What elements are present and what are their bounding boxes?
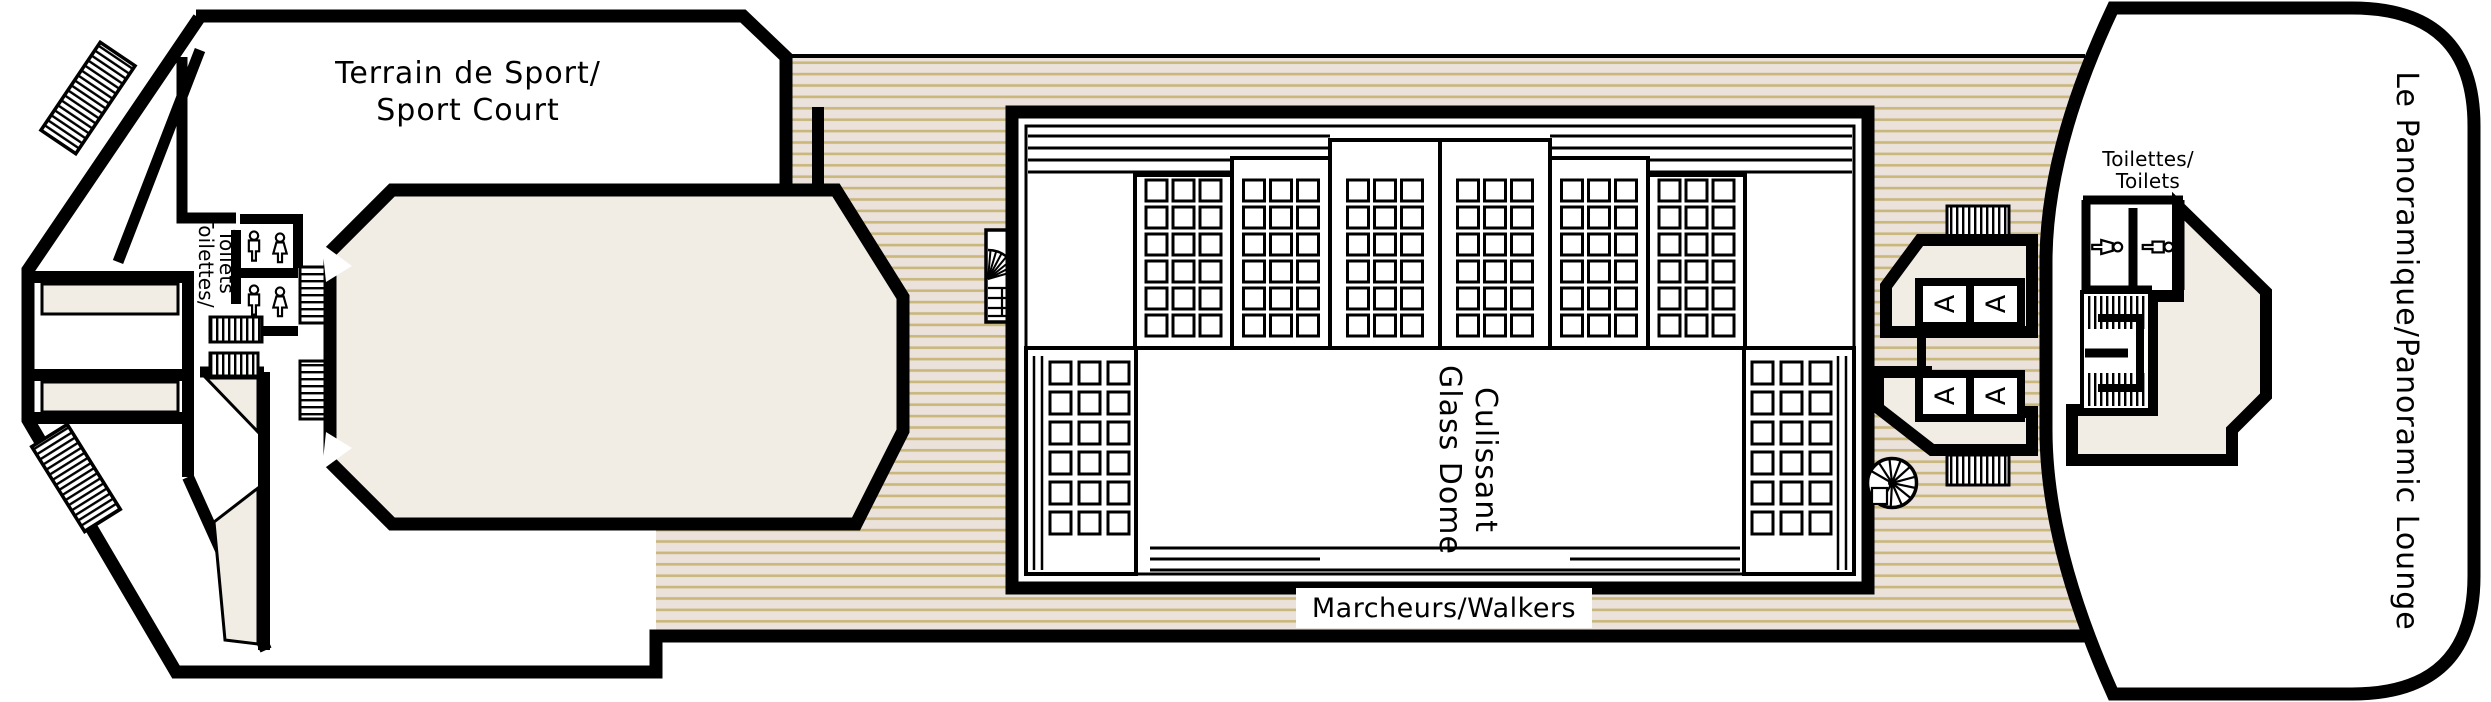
dome-pane-cell bbox=[1146, 207, 1167, 228]
dome-pane-cell bbox=[1079, 362, 1100, 384]
dome-pane-cell bbox=[1616, 315, 1637, 336]
elevator-cab-label: A bbox=[1981, 294, 2012, 313]
tread-stairs-icon bbox=[1947, 206, 2009, 236]
dome-pane-cell bbox=[1200, 207, 1221, 228]
dome-pane-cell bbox=[1200, 261, 1221, 282]
dome-pane-cell bbox=[1781, 392, 1802, 414]
dome-pane-cell bbox=[1686, 180, 1707, 201]
male-figure-icon bbox=[249, 231, 259, 260]
bow-toilets: Toilets Toilettes/ bbox=[194, 214, 298, 331]
dome-pane-cell bbox=[1298, 315, 1319, 336]
dome-pane-cell bbox=[1659, 261, 1680, 282]
dome-pane-cell bbox=[1173, 288, 1194, 309]
tread-stairs-icon bbox=[1947, 455, 2009, 485]
dome-pane-cell bbox=[1512, 234, 1533, 255]
dome-pane-cell bbox=[1108, 512, 1129, 534]
dome-pane-cell bbox=[1686, 234, 1707, 255]
dome-pane-cell bbox=[1402, 288, 1423, 309]
dome-pane-cell bbox=[1173, 180, 1194, 201]
dome-label-line2: Glass Dome bbox=[1432, 365, 1467, 555]
sport-court-label-line1: Terrain de Sport/ bbox=[334, 56, 601, 91]
dome-pane-cell bbox=[1079, 452, 1100, 474]
dome-pane-cell bbox=[1298, 234, 1319, 255]
hatched-stairs-icon bbox=[32, 424, 121, 531]
dome-pane-cell bbox=[1589, 207, 1610, 228]
dome-pane-cell bbox=[1562, 261, 1583, 282]
dome-pane-cell bbox=[1348, 288, 1369, 309]
sport-court-label: Terrain de Sport/ Sport Court bbox=[334, 56, 601, 128]
bow-room-upper bbox=[42, 284, 178, 314]
dome-pane-cell bbox=[1589, 315, 1610, 336]
dome-pane-cell bbox=[1271, 288, 1292, 309]
dome-pane-cell bbox=[1298, 207, 1319, 228]
dome-pane-cell bbox=[1375, 180, 1396, 201]
dome-pane-cell bbox=[1271, 207, 1292, 228]
dome-pane-cell bbox=[1244, 207, 1265, 228]
dome-pane-cell bbox=[1485, 261, 1506, 282]
dome-pane-cell bbox=[1050, 482, 1071, 504]
tread-stairs-icon bbox=[210, 317, 262, 342]
deck-plan-svg: Toilets Toilettes/ Terrain de Sport/ Spo… bbox=[0, 0, 2491, 702]
dome-pane-cell bbox=[1244, 261, 1265, 282]
dome-pane-cell bbox=[1298, 261, 1319, 282]
dome-pane-cell bbox=[1348, 180, 1369, 201]
female-figure-icon bbox=[273, 287, 286, 316]
dome-pane-cell bbox=[1402, 207, 1423, 228]
dome-pane-cell bbox=[1752, 362, 1773, 384]
glass-dome: Culissant Glass Dome bbox=[1012, 112, 1868, 588]
dome-pane-cell bbox=[1485, 288, 1506, 309]
dome-pane-cell bbox=[1200, 288, 1221, 309]
lounge-label: Le Panoramique/Panoramic Lounge bbox=[2389, 71, 2424, 630]
walkers-label: Marcheurs/Walkers bbox=[1296, 588, 1592, 628]
bow-toilets-label-line1: Toilettes/ bbox=[194, 215, 218, 308]
stern-toilets-label-line2: Toilets bbox=[2115, 169, 2180, 193]
dome-pane-cell bbox=[1375, 315, 1396, 336]
bow-wedge-room-2 bbox=[214, 488, 258, 644]
sport-court-roof bbox=[330, 190, 903, 524]
dome-pane-cell bbox=[1616, 207, 1637, 228]
dome-pane-cell bbox=[1271, 261, 1292, 282]
female-figure-icon bbox=[273, 233, 286, 262]
dome-pane-cell bbox=[1108, 392, 1129, 414]
dome-pane-cell bbox=[1562, 288, 1583, 309]
dome-pane-cell bbox=[1146, 288, 1167, 309]
dome-pane-cell bbox=[1348, 234, 1369, 255]
dome-pane-cell bbox=[1458, 234, 1479, 255]
dome-pane-cell bbox=[1686, 315, 1707, 336]
dome-pane-cell bbox=[1713, 180, 1734, 201]
dome-pane-cell bbox=[1589, 288, 1610, 309]
dome-pane-cell bbox=[1752, 392, 1773, 414]
dome-pane-cell bbox=[1348, 261, 1369, 282]
dome-pane-cell bbox=[1752, 422, 1773, 444]
dome-pane-cell bbox=[1050, 362, 1071, 384]
dome-pane-cell bbox=[1173, 261, 1194, 282]
dome-pane-cell bbox=[1375, 207, 1396, 228]
stern-toilets-label-line1: Toilettes/ bbox=[2101, 147, 2194, 171]
dome-label-line1: Culissant bbox=[1468, 387, 1503, 533]
dome-pane-cell bbox=[1298, 180, 1319, 201]
dome-pane-cell bbox=[1562, 315, 1583, 336]
dome-pane-cell bbox=[1713, 207, 1734, 228]
dome-pane-cell bbox=[1298, 288, 1319, 309]
dome-pane-cell bbox=[1079, 392, 1100, 414]
dome-pane-cell bbox=[1589, 261, 1610, 282]
dome-pane-cell bbox=[1079, 422, 1100, 444]
dome-pane-cell bbox=[1348, 315, 1369, 336]
dome-pane-cell bbox=[1512, 261, 1533, 282]
dome-pane-cell bbox=[1244, 288, 1265, 309]
dome-pane-cell bbox=[1458, 207, 1479, 228]
dome-pane-cell bbox=[1108, 482, 1129, 504]
dome-pane-cell bbox=[1781, 422, 1802, 444]
dome-pane-cell bbox=[1810, 422, 1831, 444]
dome-pane-cell bbox=[1659, 315, 1680, 336]
dome-pane-cell bbox=[1173, 207, 1194, 228]
dome-pane-cell bbox=[1402, 261, 1423, 282]
dome-pane-cell bbox=[1079, 512, 1100, 534]
dome-pane-cell bbox=[1562, 180, 1583, 201]
dome-pane-cell bbox=[1589, 180, 1610, 201]
dome-pane-cell bbox=[1458, 261, 1479, 282]
dome-pane-cell bbox=[1752, 512, 1773, 534]
dome-pane-cell bbox=[1562, 234, 1583, 255]
dome-pane-cell bbox=[1485, 207, 1506, 228]
dome-pane-cell bbox=[1616, 234, 1637, 255]
dome-pane-cell bbox=[1752, 452, 1773, 474]
elevator-cab-label: A bbox=[1930, 386, 1961, 405]
dome-pane-cell bbox=[1659, 207, 1680, 228]
dome-pane-cell bbox=[1375, 288, 1396, 309]
stern-lounge: Toilettes/ Toilets Le Panoramique/Panora… bbox=[2046, 8, 2474, 694]
dome-pane-cell bbox=[1616, 288, 1637, 309]
dome-pane-cell bbox=[1752, 482, 1773, 504]
dome-pane-cell bbox=[1200, 180, 1221, 201]
dome-pane-cell bbox=[1402, 315, 1423, 336]
dome-pane-cell bbox=[1146, 315, 1167, 336]
dome-pane-cell bbox=[1781, 452, 1802, 474]
dome-pane-cell bbox=[1512, 288, 1533, 309]
dome-pane-cell bbox=[1713, 288, 1734, 309]
bow-structure: Toilets Toilettes/ bbox=[28, 42, 347, 650]
dome-pane-cell bbox=[1244, 234, 1265, 255]
dome-pane-cell bbox=[1810, 362, 1831, 384]
dome-pane-cell bbox=[1458, 288, 1479, 309]
spiral-stairs-icon bbox=[1868, 459, 1917, 508]
sport-court-label-line2: Sport Court bbox=[376, 93, 560, 128]
dome-pane-cell bbox=[1781, 512, 1802, 534]
dome-pane-cell bbox=[1200, 234, 1221, 255]
dome-pane-cell bbox=[1686, 207, 1707, 228]
dome-pane-cell bbox=[1402, 180, 1423, 201]
dome-pane-cell bbox=[1713, 261, 1734, 282]
dome-pane-cell bbox=[1659, 288, 1680, 309]
dome-pane-cell bbox=[1810, 452, 1831, 474]
dome-pane-cell bbox=[1810, 392, 1831, 414]
dome-pane-cell bbox=[1616, 261, 1637, 282]
dome-pane-cell bbox=[1146, 180, 1167, 201]
dome-pane-cell bbox=[1686, 288, 1707, 309]
dome-pane-cell bbox=[1562, 207, 1583, 228]
dome-pane-cell bbox=[1781, 482, 1802, 504]
dome-pane-cell bbox=[1485, 315, 1506, 336]
lounge-label-text: Le Panoramique/Panoramic Lounge bbox=[2389, 71, 2424, 630]
bow-room-lower bbox=[42, 382, 178, 412]
dome-pane-cell bbox=[1348, 207, 1369, 228]
dome-pane-cell bbox=[1512, 315, 1533, 336]
dome-pane-cell bbox=[1244, 315, 1265, 336]
dome-pane-cell bbox=[1050, 392, 1071, 414]
stern-stairwell bbox=[2082, 292, 2150, 410]
dome-pane-cell bbox=[1146, 261, 1167, 282]
dome-pane-cell bbox=[1375, 261, 1396, 282]
dome-pane-cell bbox=[1713, 315, 1734, 336]
dome-pane-cell bbox=[1589, 234, 1610, 255]
dome-pane-cell bbox=[1050, 512, 1071, 534]
male-figure-icon bbox=[249, 285, 259, 314]
dome-pane-cell bbox=[1458, 315, 1479, 336]
dome-pane-cell bbox=[1108, 362, 1129, 384]
dome-pane-cell bbox=[1079, 482, 1100, 504]
dome-pane-cell bbox=[1659, 234, 1680, 255]
dome-pane-cell bbox=[1686, 261, 1707, 282]
dome-pane-cell bbox=[1271, 315, 1292, 336]
dome-pane-cell bbox=[1512, 207, 1533, 228]
dome-pane-cell bbox=[1173, 315, 1194, 336]
dome-pane-cell bbox=[1485, 234, 1506, 255]
dome-pane-cell bbox=[1271, 180, 1292, 201]
dome-pane-cell bbox=[1810, 482, 1831, 504]
dome-pane-cell bbox=[1271, 234, 1292, 255]
deck-plan-page: Toilets Toilettes/ Terrain de Sport/ Spo… bbox=[0, 0, 2491, 702]
dome-pane-cell bbox=[1200, 315, 1221, 336]
dome-pane-cell bbox=[1659, 180, 1680, 201]
dome-pane-cell bbox=[1485, 180, 1506, 201]
dome-pane-cell bbox=[1050, 422, 1071, 444]
dome-pane-cell bbox=[1616, 180, 1637, 201]
dome-pane-cell bbox=[1375, 234, 1396, 255]
bow-wedge-room-1 bbox=[206, 378, 258, 432]
dome-pane-cell bbox=[1108, 452, 1129, 474]
dome-pane-cell bbox=[1402, 234, 1423, 255]
dome-pane-cell bbox=[1781, 362, 1802, 384]
dome-pane-cell bbox=[1244, 180, 1265, 201]
stern-toilets-label: Toilettes/ Toilets bbox=[2101, 147, 2194, 193]
dome-pane-cell bbox=[1810, 512, 1831, 534]
dome-pane-cell bbox=[1108, 422, 1129, 444]
spiral-core bbox=[1888, 479, 1896, 487]
dome-pane-cell bbox=[1146, 234, 1167, 255]
elevator-cab-label: A bbox=[1930, 294, 1961, 313]
bow-toilets-label: Toilets Toilettes/ bbox=[194, 215, 239, 308]
dome-pane-cell bbox=[1173, 234, 1194, 255]
dome-pane-cell bbox=[1050, 452, 1071, 474]
tread-stairs-icon bbox=[210, 353, 258, 376]
dome-pane-cell bbox=[1713, 234, 1734, 255]
dome-pane-cell bbox=[1458, 180, 1479, 201]
dome-label: Culissant Glass Dome bbox=[1432, 365, 1503, 555]
elevator-cab-label: A bbox=[1981, 386, 2012, 405]
dome-pane-cell bbox=[1512, 180, 1533, 201]
walkers-label-text: Marcheurs/Walkers bbox=[1312, 593, 1576, 624]
